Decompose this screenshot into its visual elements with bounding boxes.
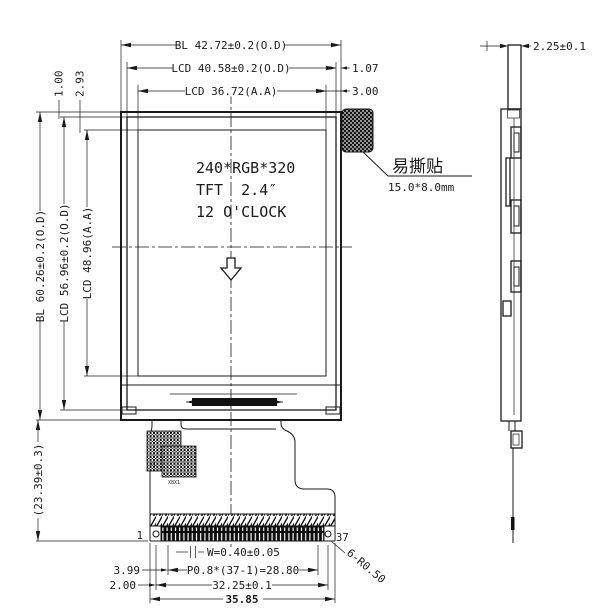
- dim-bl-width: BL 42.72±0.2(O.D): [175, 39, 288, 52]
- fpc-component-2-label: X8X1: [168, 480, 180, 486]
- sticker-size: 15.0*8.0mm: [388, 181, 455, 194]
- dim-hole-span: 32.25±0.1: [212, 579, 272, 592]
- sticker-label: 易撕贴: [392, 157, 443, 177]
- side-tape-strip: [506, 158, 510, 206]
- dim-edge-to-aa: 3.00: [352, 85, 379, 98]
- front-view: 240*RGB*320 TFT 2.4″ 12 O'CLOCK 易撕贴 15.0…: [112, 90, 472, 547]
- fpc-component-2: [162, 446, 196, 477]
- dim-edge-to-hole: 2.00: [110, 579, 137, 592]
- dim-bl-height: BL 60.26±0.2(O.D): [34, 210, 47, 323]
- connector-stiffener: [150, 514, 335, 526]
- resolution-text: 240*RGB*320: [196, 159, 295, 177]
- pin-label-1: 1: [137, 530, 143, 542]
- pin-label-37: 37: [336, 532, 349, 544]
- dim-edge-to-lcd: 1.07: [352, 62, 379, 75]
- drawing-canvas: 240*RGB*320 TFT 2.4″ 12 O'CLOCK 易撕贴 15.0…: [0, 0, 604, 616]
- dim-pitch: P0.8*(37-1)=28.80: [187, 564, 300, 577]
- dim-lcd-height: LCD 56.96±0.2(O.D): [58, 203, 71, 322]
- dim-fpc-length: (23.39±0.3): [32, 444, 45, 517]
- viewing-direction-text: 12 O'CLOCK: [196, 203, 286, 221]
- fpc-component-1-label: X1: [150, 462, 156, 468]
- dim-total-width: 35.85: [225, 593, 258, 606]
- fpc-top-edge: [181, 420, 276, 429]
- viewing-direction-arrow-icon: [221, 258, 241, 280]
- fpc-right-edge: [281, 420, 335, 514]
- tear-sticker: 易撕贴 15.0*8.0mm: [342, 109, 472, 194]
- dim-aa-height: LCD 48.96(A.A): [81, 207, 94, 300]
- panel-spec-text: 240*RGB*320 TFT 2.4″ 12 O'CLOCK: [196, 159, 295, 280]
- dim-gap-lcd-aa: 2.93: [74, 71, 87, 98]
- dim-lcd-width: LCD 40.58±0.2(O.D): [171, 62, 290, 75]
- dim-pin-width: W=0.40±0.05: [207, 546, 280, 559]
- dim-corner-radius: 6-R0.50: [344, 546, 388, 586]
- side-view: 2.25±0.1: [480, 40, 586, 543]
- fpc: X1 X8X1 1 37: [137, 420, 349, 544]
- left-dimensions: BL 60.26±0.2(O.D) LCD 56.96±0.2(O.D) LCD…: [32, 71, 148, 542]
- side-hook-2: [511, 200, 521, 233]
- side-fpc-stiffener: [511, 517, 515, 530]
- lcd-outline-drawing: 240*RGB*320 TFT 2.4″ 12 O'CLOCK 易撕贴 15.0…: [0, 0, 604, 616]
- side-tab: [503, 301, 511, 316]
- dim-thickness: 2.25±0.1: [533, 40, 586, 53]
- driver-ic-bar: [192, 398, 277, 406]
- dim-edge-to-pin1: 3.99: [114, 564, 141, 577]
- alignment-hole-left: [153, 531, 159, 537]
- gold-finger-pins: [161, 527, 324, 541]
- alignment-hole-right: [325, 531, 331, 537]
- side-hook-3: [511, 261, 521, 292]
- side-glass-top: [508, 45, 521, 109]
- size-text: TFT 2.4″: [196, 181, 277, 199]
- bottom-dimensions: W=0.40±0.05 P0.8*(37-1)=28.80 3.99 32.25…: [110, 541, 388, 606]
- dim-gap-bl-lcd: 1.00: [53, 71, 66, 98]
- tear-sticker-tab: [342, 109, 373, 152]
- dim-aa-width: LCD 36.72(A.A): [185, 85, 278, 98]
- side-hook-1: [511, 127, 521, 158]
